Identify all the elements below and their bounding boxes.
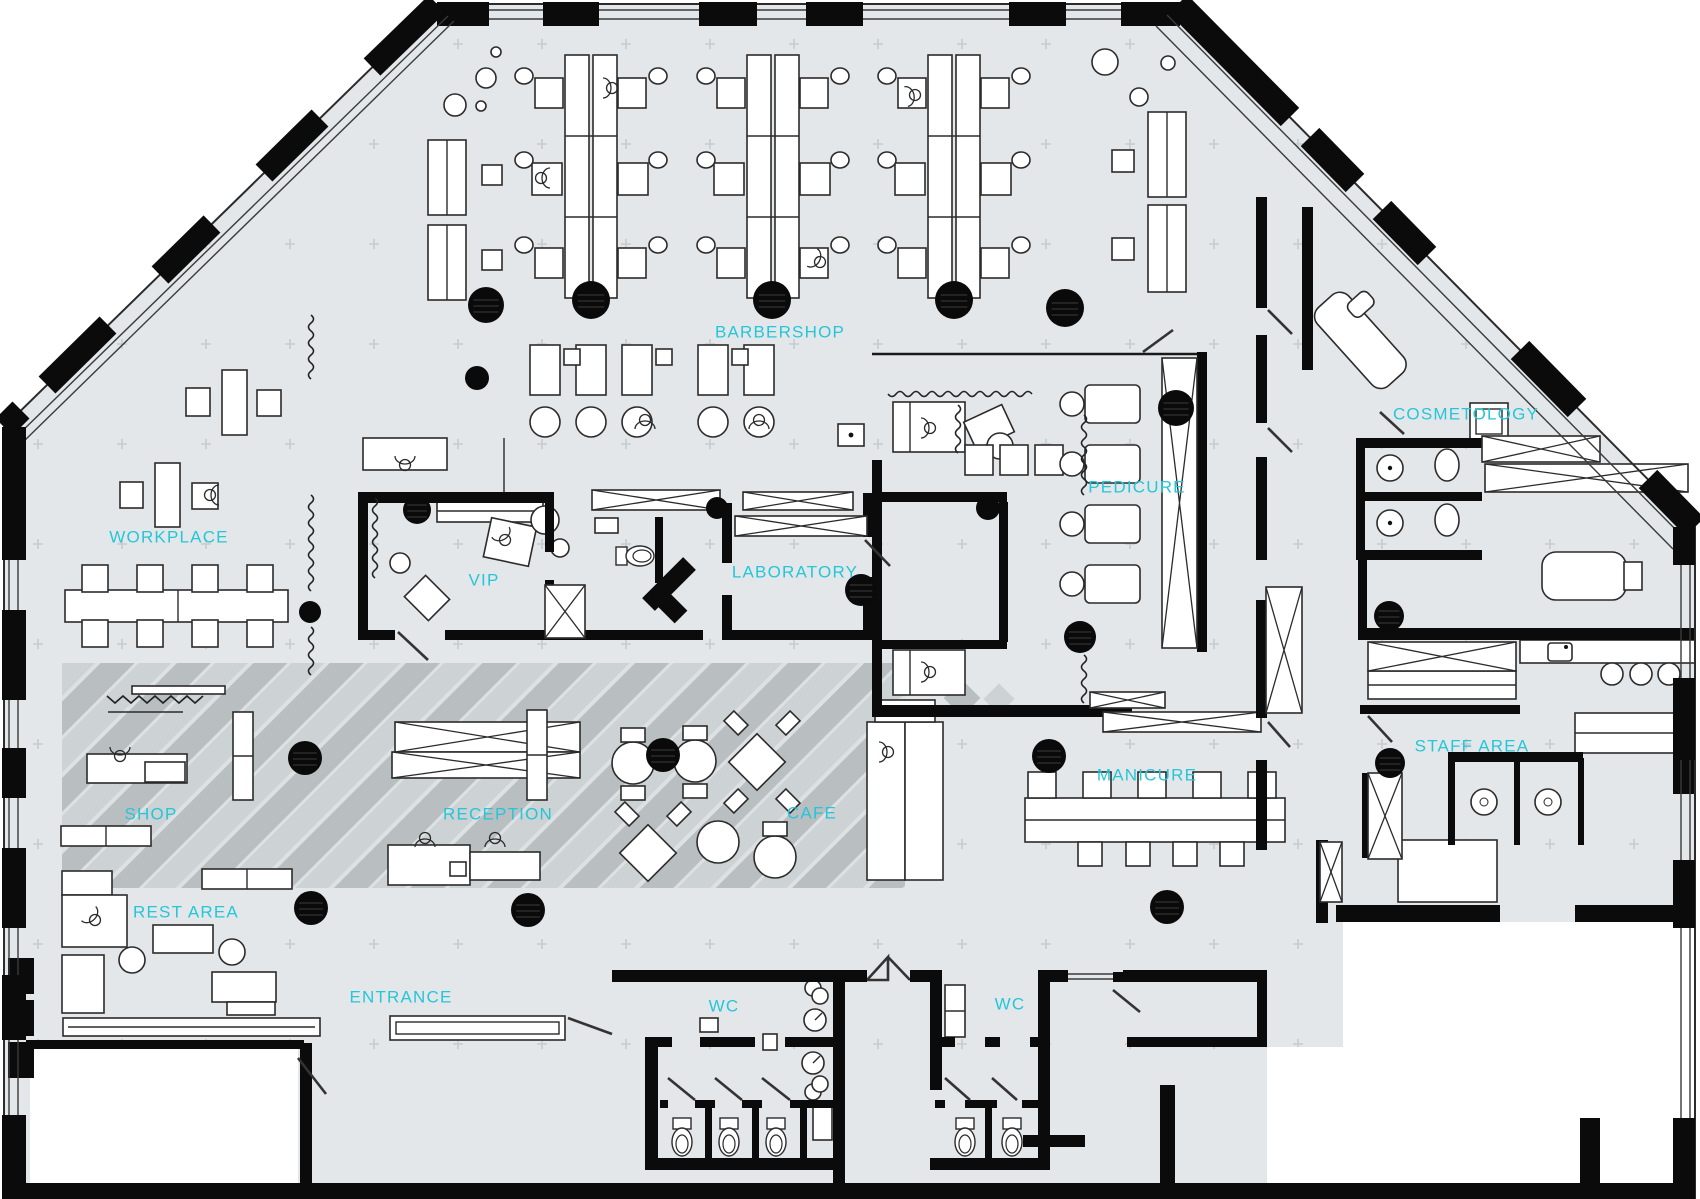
room-label-staff-area: STAFF AREA: [1415, 738, 1530, 755]
column: [1150, 890, 1184, 924]
room-label-laboratory: LABORATORY: [732, 564, 858, 581]
column: [288, 741, 322, 775]
column: [511, 893, 545, 927]
room-label-reception: RECEPTION: [443, 806, 553, 823]
column: [1064, 621, 1096, 653]
column: [1375, 748, 1405, 778]
column: [753, 281, 791, 319]
floor-plan: BARBERSHOPWORKPLACEVIPLABORATORYPEDICURE…: [0, 0, 1700, 1199]
column: [935, 281, 973, 319]
column: [294, 891, 328, 925]
room-label-rest-area: REST AREA: [133, 904, 239, 921]
room-label-wc-1: WC: [709, 998, 740, 1015]
column: [465, 366, 489, 390]
room-label-workplace: WORKPLACE: [109, 529, 228, 546]
column: [706, 497, 728, 519]
room-label-manicure: MANICURE: [1097, 767, 1197, 784]
column: [403, 496, 431, 524]
column: [976, 496, 1000, 520]
room-label-wc-2: WC: [995, 996, 1026, 1013]
column: [468, 287, 504, 323]
room-label-entrance: ENTRANCE: [349, 989, 452, 1006]
room-label-vip: VIP: [468, 572, 499, 589]
column: [646, 738, 680, 772]
room-label-shop: SHOP: [125, 806, 178, 823]
room-label-cafe: CAFE: [787, 805, 837, 822]
column: [1374, 601, 1404, 631]
room-label-cosmetology: COSMETOLOGY: [1393, 406, 1539, 423]
column: [1032, 739, 1066, 773]
room-label-barbershop: BARBERSHOP: [715, 324, 845, 341]
column: [299, 601, 321, 623]
column: [1158, 390, 1194, 426]
column: [572, 281, 610, 319]
room-label-pedicure: PEDICURE: [1088, 479, 1185, 496]
floorplan-drawing: [0, 0, 1700, 1199]
column: [1046, 289, 1084, 327]
